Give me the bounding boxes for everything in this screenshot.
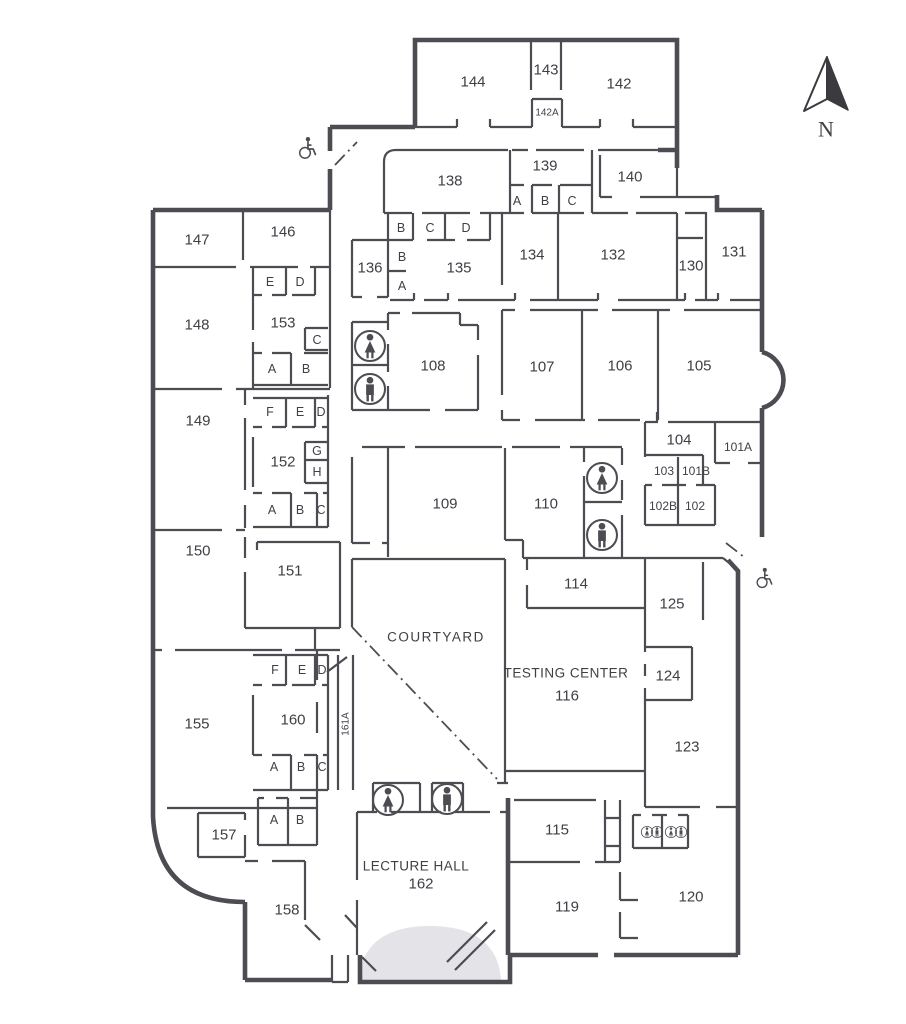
room-label-142a: 142A [535,108,559,119]
north-arrow-icon: N [804,57,848,142]
room-label-130: 130 [678,258,703,275]
room-label-107: 107 [529,359,554,376]
room-label-158: 158 [274,902,299,919]
room-label-124: 124 [655,668,680,685]
room-label-c: C [317,760,326,774]
room-label-e: E [298,663,306,677]
room-label-155: 155 [184,716,209,733]
floor-plan-svg: N 144143142142A138139ABC140147146136BCDB… [0,0,906,1024]
room-label-160: 160 [280,712,305,729]
room-label-115: 115 [545,822,569,839]
room-label-e: E [296,405,304,419]
room-label-a: A [268,362,277,376]
room-label-116: 116 [555,688,579,705]
room-label-157: 157 [211,827,236,844]
room-label-b: B [398,250,406,264]
room-label-135: 135 [446,260,471,277]
room-label-b: B [296,813,304,827]
room-label-b: B [541,194,549,208]
room-label-d: D [461,221,470,235]
room-label-144: 144 [460,74,485,91]
room-label-120: 120 [678,889,703,906]
room-label-103: 103 [654,464,674,478]
room-label-f: F [271,663,279,677]
room-label-b: B [397,221,405,235]
room-label-119: 119 [555,899,579,916]
room-label-102: 102 [685,499,705,513]
room-label-c: C [567,194,576,208]
room-label-153: 153 [270,315,295,332]
room-label-161a: 161A [341,712,352,736]
room-label-101a: 101A [724,440,752,454]
room-label-f: F [266,405,274,419]
room-label-149: 149 [185,413,210,430]
wheelchair-icon [300,137,316,158]
room-label-105: 105 [686,358,711,375]
room-label-109: 109 [432,496,457,513]
lecture-hall-stage [359,926,501,981]
room-label-e: E [266,275,274,289]
floor-plan-page: N 144143142142A138139ABC140147146136BCDB… [0,0,906,1024]
room-label-d: D [295,275,304,289]
room-label-b: B [302,362,310,376]
room-label-104: 104 [666,432,691,449]
room-label-courtyard: COURTYARD [387,630,485,645]
room-label-c: C [312,333,321,347]
room-label-c: C [316,503,325,517]
room-label-a: A [270,760,279,774]
room-label-146: 146 [270,224,295,241]
room-label-a: A [270,813,279,827]
room-label-b: B [296,503,304,517]
room-label-106: 106 [607,358,632,375]
room-label-lecture-hall: LECTURE HALL [363,859,470,874]
room-label-132: 132 [600,247,625,264]
north-label: N [818,117,834,142]
wheelchair-icon [757,568,772,588]
room-label-h: H [312,465,321,479]
room-label-d: D [316,405,325,419]
room-label-110: 110 [534,496,558,513]
restroom-male-icon [355,374,385,404]
icons-layer [300,137,772,838]
room-label-150: 150 [185,543,210,560]
room-label-101b: 101B [682,464,710,478]
restroom-female-icon [373,785,403,815]
room-label-g: G [312,444,322,458]
room-label-102b: 102B [649,499,677,513]
room-label-b: B [297,760,305,774]
room-label-151: 151 [277,563,302,580]
room-label-142: 142 [606,76,631,93]
restroom-male-icon [432,784,462,814]
room-label-136: 136 [357,260,382,277]
room-label-a: A [398,279,407,293]
room-label-testing-center: TESTING CENTER [504,666,629,681]
room-label-131: 131 [721,244,746,261]
room-label-152: 152 [270,454,295,471]
room-label-114: 114 [564,576,588,593]
room-label-147: 147 [184,232,209,249]
restroom-female-icon [587,463,617,493]
room-label-140: 140 [617,169,642,186]
room-label-138: 138 [437,173,462,190]
restroom-female-icon [355,331,385,361]
restroom-male-icon [587,520,617,550]
room-label-125: 125 [659,596,684,613]
room-label-143: 143 [533,62,558,79]
room-label-108: 108 [420,358,445,375]
room-label-162: 162 [408,876,433,893]
room-label-a: A [268,503,277,517]
room-label-148: 148 [184,317,209,334]
room-label-123: 123 [674,739,699,756]
room-label-134: 134 [519,247,544,264]
room-label-139: 139 [532,158,557,175]
room-label-a: A [513,194,522,208]
room-label-c: C [425,221,434,235]
room-label-d: D [317,663,326,677]
